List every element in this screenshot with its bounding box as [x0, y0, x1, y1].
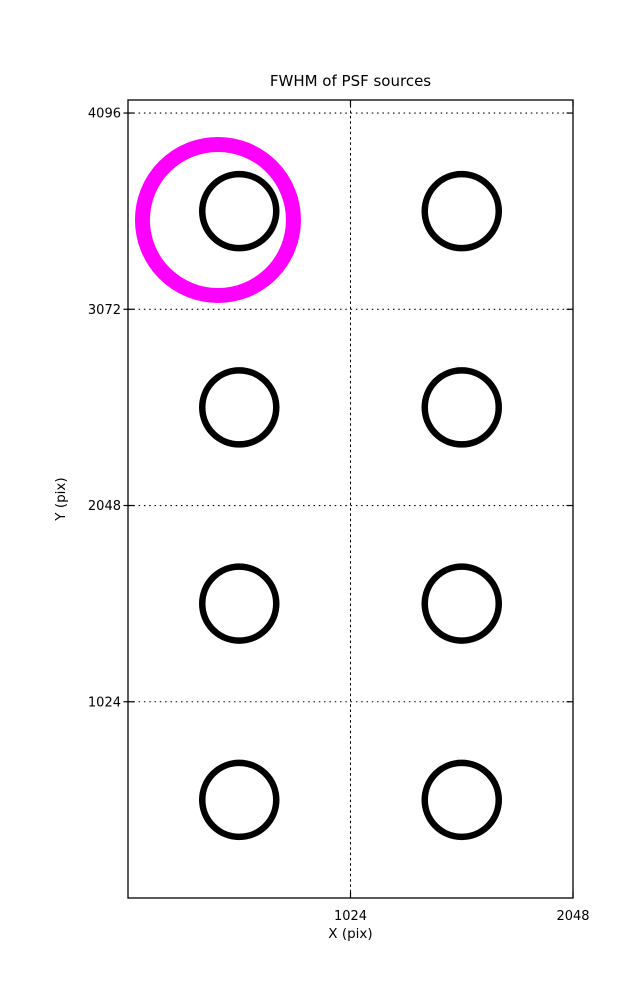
- highlighted-fwhm-source-marker: [142, 144, 293, 295]
- psf-grid-sources-marker: [202, 370, 276, 444]
- ytick-label: 2048: [88, 499, 121, 514]
- psf-grid-sources-marker: [202, 763, 276, 837]
- figure: FWHM of PSF sources 10242048307240961024…: [0, 0, 637, 1000]
- xtick-label: 1024: [334, 909, 367, 924]
- psf-grid-sources-marker: [425, 763, 499, 837]
- ytick-label: 4096: [88, 107, 121, 122]
- psf-grid-sources-marker: [202, 174, 276, 248]
- x-axis-label: X (pix): [128, 926, 573, 942]
- psf-grid-sources-marker: [425, 567, 499, 641]
- y-axis-label: Y (pix): [53, 477, 69, 520]
- ytick-label: 1024: [88, 695, 121, 710]
- ytick-label: 3072: [88, 303, 121, 318]
- psf-grid-sources-marker: [425, 174, 499, 248]
- psf-grid-sources-marker: [202, 567, 276, 641]
- xtick-label: 2048: [556, 909, 589, 924]
- psf-grid-sources-marker: [425, 370, 499, 444]
- plot-canvas: 102420483072409610242048: [0, 0, 637, 1000]
